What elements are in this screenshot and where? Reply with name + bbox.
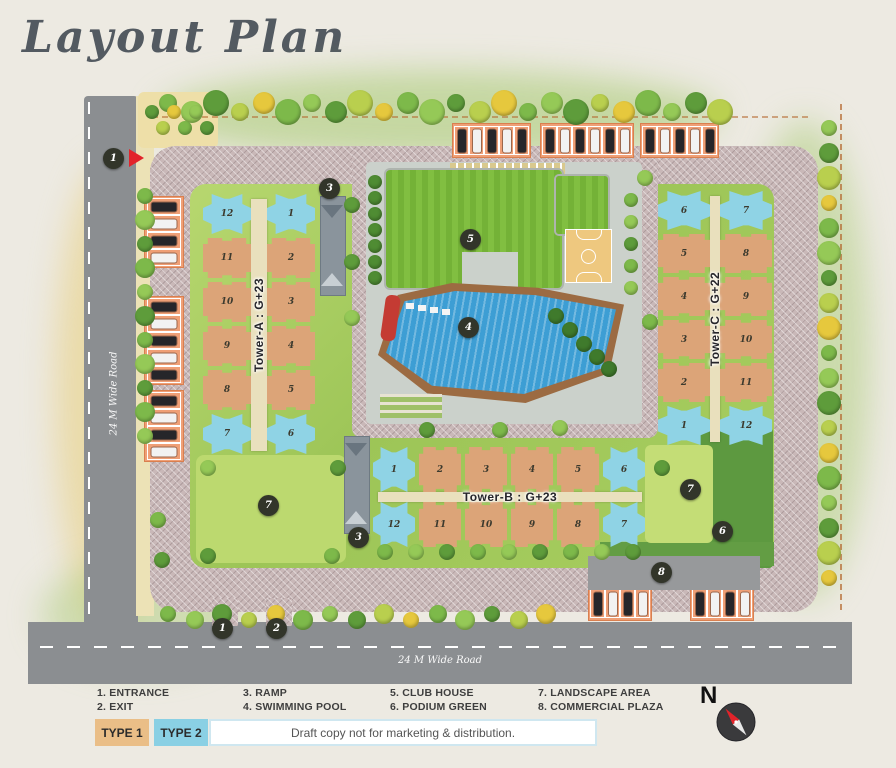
unit-cluster: 4: [511, 447, 553, 492]
tree: [344, 197, 360, 213]
car-icon: [621, 129, 629, 152]
tree: [663, 103, 681, 121]
legend-column: 5. CLUB HOUSE6. PODIUM GREEN: [390, 686, 538, 714]
tower-label: Tower-C : G+22: [708, 272, 722, 366]
parking-stall: [454, 126, 469, 155]
layout-plan-page: Layout Plan 24 M Wide Road 24 M Wide Roa…: [0, 0, 896, 768]
garden-plots: [380, 394, 442, 418]
marker-8: 8: [651, 562, 672, 583]
tree: [135, 306, 155, 326]
tree: [368, 271, 382, 285]
tree: [377, 544, 393, 560]
legend-item: 1. ENTRANCE: [97, 686, 243, 700]
tree: [322, 606, 338, 622]
tree: [819, 218, 839, 238]
parking-stall: [702, 126, 717, 155]
tree: [541, 92, 563, 114]
unit-cluster: 5: [557, 447, 599, 492]
car-icon: [152, 396, 177, 405]
parking-stall: [499, 126, 514, 155]
tree: [532, 544, 548, 560]
pool-lounger: [442, 309, 450, 315]
pool-lounger: [418, 305, 426, 311]
tree: [186, 611, 204, 629]
type-legend: TYPE 1TYPE 2: [95, 719, 208, 746]
tree: [330, 460, 346, 476]
unit-cluster: 7: [203, 414, 251, 454]
road-bottom: [28, 622, 852, 684]
tree: [707, 99, 733, 125]
tree: [178, 121, 192, 135]
tree: [552, 420, 568, 436]
marker-2: 2: [266, 618, 287, 639]
tree: [403, 612, 419, 628]
car-icon: [503, 129, 511, 152]
tree: [145, 105, 159, 119]
parking-stall: [692, 589, 707, 618]
marker-6: 6: [712, 521, 733, 542]
marker-7: 7: [258, 495, 279, 516]
tree: [429, 605, 447, 623]
tower-label: Tower-A : G+23: [252, 278, 266, 372]
unit-cluster: 8: [720, 234, 772, 273]
unit-cluster: 12: [720, 406, 772, 445]
legend-item: 2. EXIT: [97, 700, 243, 714]
tree: [368, 255, 382, 269]
unit-cluster: 7: [720, 191, 772, 230]
legend-item: 7. LANDSCAPE AREA: [538, 686, 708, 700]
tree: [348, 611, 366, 629]
car-icon: [546, 129, 554, 152]
tree: [137, 188, 153, 204]
car-icon: [591, 129, 599, 152]
tree: [563, 99, 589, 125]
tree: [601, 361, 617, 377]
tree: [160, 606, 176, 622]
clubhouse-courtyard: [462, 252, 518, 288]
tree: [344, 310, 360, 326]
ramp-chevron: [345, 511, 367, 524]
car-icon: [152, 413, 177, 422]
entrance-arrow-icon: [129, 149, 144, 167]
legend: 1. ENTRANCE2. EXIT3. RAMP4. SWIMMING POO…: [97, 686, 708, 714]
tree: [492, 422, 508, 438]
unit-cluster: 3: [267, 282, 315, 322]
car-icon: [706, 129, 714, 152]
tree: [501, 544, 517, 560]
unit-cluster: 12: [373, 502, 415, 547]
car-icon: [561, 129, 569, 152]
tree: [408, 544, 424, 560]
parking-stall: [557, 126, 572, 155]
car-icon: [152, 319, 177, 328]
tree: [491, 90, 517, 116]
tower-c: 675849310211112Tower-C : G+22: [658, 190, 772, 448]
unit-cluster: 11: [720, 363, 772, 402]
parking-stall: [605, 589, 620, 618]
tree: [154, 552, 170, 568]
ramp-south: [344, 436, 370, 534]
parking-stall: [572, 126, 587, 155]
unit-cluster: 11: [203, 238, 251, 278]
parking-row-left: [144, 196, 184, 268]
parking-stall: [617, 126, 632, 155]
unit-cluster: 6: [658, 191, 710, 230]
court-circle: [581, 249, 596, 264]
tree: [137, 332, 153, 348]
car-icon: [639, 592, 647, 615]
tree: [613, 101, 635, 123]
parking-row-top: [540, 123, 634, 158]
landscape-lawn-right: [645, 445, 713, 543]
unit-cluster: 9: [720, 277, 772, 316]
unit-cluster: 6: [603, 447, 645, 492]
parking-stall: [602, 126, 617, 155]
tree: [137, 380, 153, 396]
tree: [821, 195, 837, 211]
car-icon: [152, 253, 177, 262]
tree: [275, 99, 301, 125]
tree: [484, 606, 500, 622]
tree: [374, 604, 394, 624]
ramp-chevron: [321, 205, 343, 218]
marker-1: 1: [212, 618, 233, 639]
parking-row-commercial: [588, 586, 652, 621]
tree: [510, 611, 528, 629]
draft-note: Draft copy not for marketing & distribut…: [209, 719, 597, 746]
tree: [642, 314, 658, 330]
clubhouse-roof: [556, 176, 608, 234]
car-icon: [606, 129, 614, 152]
unit-cluster: 6: [267, 414, 315, 454]
tree: [137, 236, 153, 252]
tree: [419, 422, 435, 438]
tree: [135, 402, 155, 422]
tree: [455, 610, 475, 630]
unit-cluster: 10: [720, 320, 772, 359]
parking-stall: [737, 589, 752, 618]
tree: [821, 345, 837, 361]
basketball-court: [565, 229, 612, 283]
car-icon: [458, 129, 466, 152]
unit-cluster: 8: [557, 502, 599, 547]
tree: [821, 420, 837, 436]
pool-lounger: [406, 303, 414, 309]
unit-cluster: 2: [419, 447, 461, 492]
tree: [819, 368, 839, 388]
pool-lounger: [430, 307, 438, 313]
car-icon: [609, 592, 617, 615]
parking-stall: [620, 589, 635, 618]
legend-item: 5. CLUB HOUSE: [390, 686, 538, 700]
tree: [293, 610, 313, 630]
parking-stall: [672, 126, 687, 155]
car-icon: [473, 129, 481, 152]
tree: [137, 284, 153, 300]
tree: [548, 308, 564, 324]
tree: [375, 103, 393, 121]
tree: [135, 354, 155, 374]
road-bottom-label: 24 M Wide Road: [398, 655, 482, 666]
car-icon: [518, 129, 526, 152]
tree: [819, 143, 839, 163]
parking-stall: [590, 589, 605, 618]
parking-stall: [635, 589, 650, 618]
tree: [817, 391, 841, 415]
tree: [150, 512, 166, 528]
tree: [817, 316, 841, 340]
tree: [344, 254, 360, 270]
car-icon: [676, 129, 684, 152]
ramp-chevron: [345, 443, 367, 456]
legend-item: 3. RAMP: [243, 686, 390, 700]
court-line: [576, 272, 602, 282]
parking-stall: [147, 443, 181, 460]
parking-stall: [722, 589, 737, 618]
parking-row-left: [144, 390, 184, 462]
tree: [685, 92, 707, 114]
tree: [536, 604, 556, 624]
tree: [203, 90, 229, 116]
tree: [576, 336, 592, 352]
unit-cluster: 7: [603, 502, 645, 547]
tree: [200, 460, 216, 476]
unit-cluster: 11: [419, 502, 461, 547]
tree: [368, 207, 382, 221]
tree: [821, 270, 837, 286]
car-icon: [152, 219, 177, 228]
commercial-plaza: [588, 556, 760, 590]
tree: [819, 518, 839, 538]
parking-stall: [469, 126, 484, 155]
marker-4: 4: [458, 317, 479, 338]
tree: [137, 428, 153, 444]
car-icon: [646, 129, 654, 152]
tree: [591, 94, 609, 112]
car-icon: [152, 447, 177, 456]
unit-cluster: 3: [658, 320, 710, 359]
compass-icon: [714, 700, 758, 744]
car-icon: [726, 592, 734, 615]
tree: [368, 175, 382, 189]
tree: [817, 166, 841, 190]
legend-item: 8. COMMERCIAL PLAZA: [538, 700, 708, 714]
tree: [624, 215, 638, 229]
tree: [253, 92, 275, 114]
tree: [368, 223, 382, 237]
tree: [817, 466, 841, 490]
tree: [447, 94, 465, 112]
marker-5: 5: [460, 229, 481, 250]
unit-cluster: 9: [511, 502, 553, 547]
unit-cluster: 8: [203, 370, 251, 410]
parking-row-commercial: [690, 586, 754, 621]
unit-cluster: 12: [203, 194, 251, 234]
unit-cluster: 2: [658, 363, 710, 402]
unit-cluster: 1: [267, 194, 315, 234]
tree: [624, 259, 638, 273]
parking-stall: [687, 126, 702, 155]
car-icon: [152, 336, 177, 345]
unit-cluster: 3: [465, 447, 507, 492]
parking-row-top: [452, 123, 531, 158]
road-left-dashed-line: [88, 102, 90, 626]
type-2-swatch: TYPE 2: [154, 719, 208, 746]
car-icon: [152, 236, 177, 245]
tree: [368, 239, 382, 253]
legend-item: 6. PODIUM GREEN: [390, 700, 538, 714]
tree: [325, 101, 347, 123]
unit-cluster: 1: [658, 406, 710, 445]
tower-a: 121112103948576Tower-A : G+23: [203, 193, 315, 457]
tree: [303, 94, 321, 112]
tree: [819, 443, 839, 463]
tree: [519, 103, 537, 121]
car-icon: [661, 129, 669, 152]
tree: [470, 544, 486, 560]
legend-item: 4. SWIMMING POOL: [243, 700, 390, 714]
car-icon: [696, 592, 704, 615]
car-icon: [576, 129, 584, 152]
tree: [439, 544, 455, 560]
parking-stall: [514, 126, 529, 155]
tower-b: 112211310495867Tower-B : G+23: [372, 447, 648, 547]
marker-7: 7: [680, 479, 701, 500]
legend-column: 3. RAMP4. SWIMMING POOL: [243, 686, 390, 714]
parking-stall: [657, 126, 672, 155]
tree: [419, 99, 445, 125]
unit-cluster: 2: [267, 238, 315, 278]
tree: [135, 210, 155, 230]
car-icon: [741, 592, 749, 615]
tree: [368, 191, 382, 205]
court-line: [576, 230, 602, 240]
tree: [637, 170, 653, 186]
car-icon: [691, 129, 699, 152]
tree: [817, 541, 841, 565]
tree: [624, 281, 638, 295]
tower-label: Tower-B : G+23: [463, 490, 557, 504]
parking-stall: [707, 589, 722, 618]
marker-3: 3: [348, 527, 369, 548]
legend-column: 1. ENTRANCE2. EXIT: [97, 686, 243, 714]
tree: [200, 548, 216, 564]
unit-cluster: 10: [465, 502, 507, 547]
tree: [594, 544, 610, 560]
type-1-swatch: TYPE 1: [95, 719, 149, 746]
car-icon: [152, 370, 177, 379]
unit-cluster: 4: [267, 326, 315, 366]
tree: [167, 105, 181, 119]
tree: [624, 193, 638, 207]
tree: [200, 121, 214, 135]
site-plan: 24 M Wide Road 24 M Wide Road: [0, 0, 896, 768]
tree: [135, 258, 155, 278]
legend-column: 7. LANDSCAPE AREA8. COMMERCIAL PLAZA: [538, 686, 708, 714]
parking-row-top: [640, 123, 719, 158]
tree: [563, 544, 579, 560]
tree: [625, 544, 641, 560]
parking-stall: [542, 126, 557, 155]
car-icon: [152, 202, 177, 211]
tree: [817, 241, 841, 265]
tree: [819, 293, 839, 313]
tree: [821, 570, 837, 586]
marker-1: 1: [103, 148, 124, 169]
tree: [231, 103, 249, 121]
tree: [347, 90, 373, 116]
tree: [654, 460, 670, 476]
tree: [624, 237, 638, 251]
car-icon: [152, 353, 177, 362]
tree: [241, 612, 257, 628]
car-icon: [152, 302, 177, 311]
unit-cluster: 5: [267, 370, 315, 410]
car-icon: [711, 592, 719, 615]
unit-cluster: 5: [658, 234, 710, 273]
car-icon: [152, 430, 177, 439]
ramp-north: [320, 196, 346, 296]
tree: [156, 121, 170, 135]
tree: [397, 92, 419, 114]
car-icon: [594, 592, 602, 615]
tree: [562, 322, 578, 338]
tree: [821, 495, 837, 511]
unit-cluster: 9: [203, 326, 251, 366]
tree: [635, 90, 661, 116]
road-bottom-dashed-line: [40, 646, 836, 648]
unit-cluster: 4: [658, 277, 710, 316]
tree: [821, 120, 837, 136]
tree: [469, 101, 491, 123]
marker-3: 3: [319, 178, 340, 199]
car-icon: [488, 129, 496, 152]
parking-stall: [587, 126, 602, 155]
ramp-chevron: [321, 273, 343, 286]
parking-stall: [642, 126, 657, 155]
road-left-label: 24 M Wide Road: [109, 351, 120, 435]
car-icon: [624, 592, 632, 615]
tree: [324, 548, 340, 564]
unit-cluster: 10: [203, 282, 251, 322]
tree: [189, 105, 203, 119]
unit-cluster: 1: [373, 447, 415, 492]
parking-stall: [484, 126, 499, 155]
